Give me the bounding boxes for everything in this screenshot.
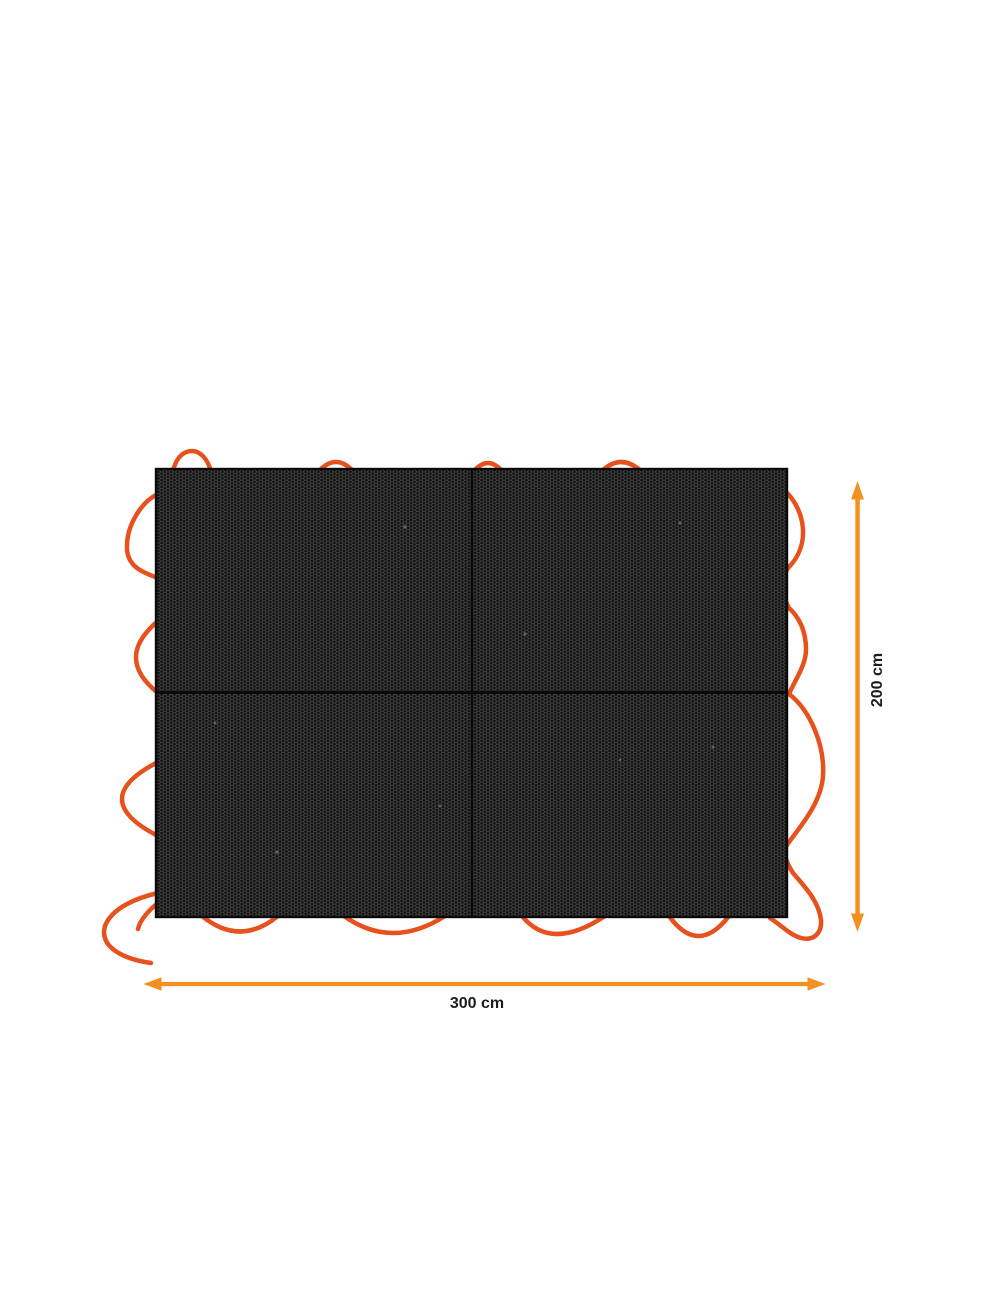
- svg-text:200 cm: 200 cm: [869, 653, 886, 707]
- svg-text:300 cm: 300 cm: [450, 995, 504, 1012]
